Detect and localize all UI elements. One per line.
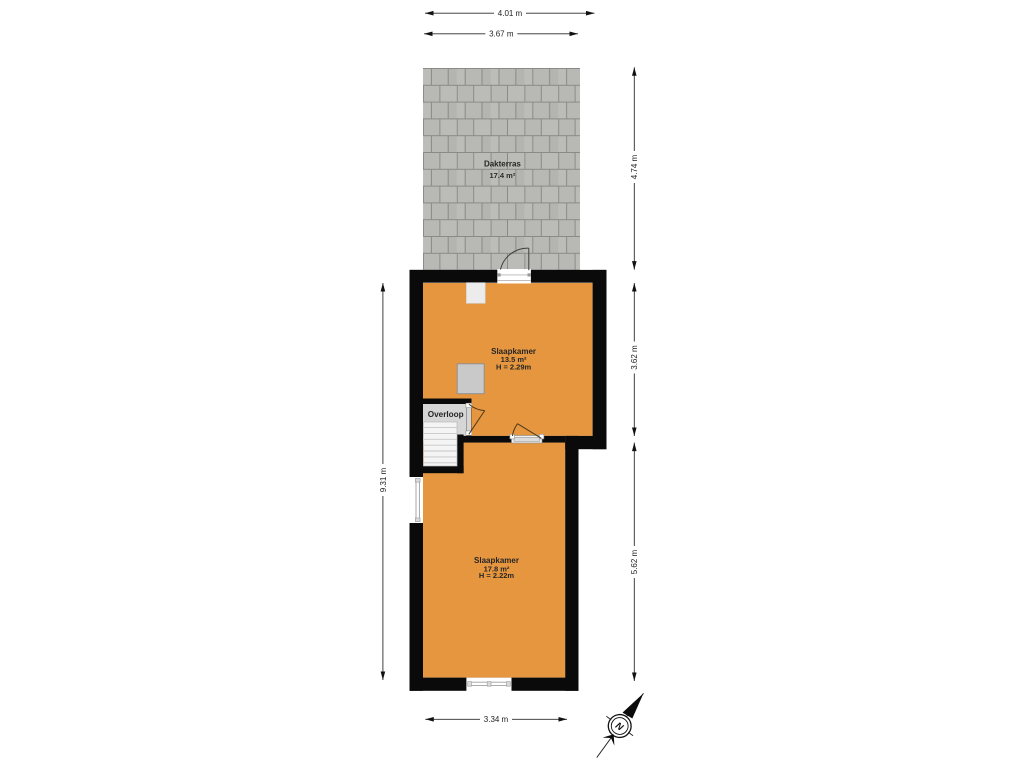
svg-text:Overloop: Overloop [428, 410, 464, 419]
svg-text:3.67 m: 3.67 m [489, 30, 514, 39]
svg-text:H = 2.29m: H = 2.29m [496, 363, 532, 372]
svg-text:4.01 m: 4.01 m [498, 9, 523, 18]
svg-text:17.4 m²: 17.4 m² [489, 171, 515, 180]
svg-text:H = 2.22m: H = 2.22m [479, 571, 515, 580]
svg-text:9.31 m: 9.31 m [379, 467, 388, 492]
svg-text:5.62 m: 5.62 m [630, 549, 639, 574]
svg-text:4.74 m: 4.74 m [630, 154, 639, 179]
svg-text:3.34 m: 3.34 m [484, 715, 509, 724]
svg-text:3.62 m: 3.62 m [630, 345, 639, 370]
svg-text:Dakterras: Dakterras [484, 160, 521, 169]
